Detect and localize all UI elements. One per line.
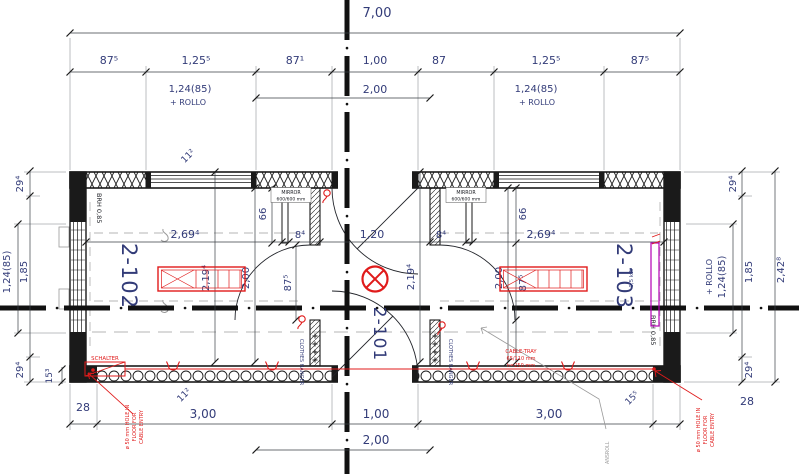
brh-note-left: BRH 0,85 <box>95 193 103 223</box>
dim-left-wall-top: 29⁴ <box>15 176 26 193</box>
dim-right-room: 1,85 <box>744 261 755 283</box>
dim-room-width-left: 2,69⁴ <box>171 228 200 241</box>
dim-bottom-28-right: 28 <box>740 395 754 408</box>
rollo-leader-text: ANSROLL <box>605 441 611 464</box>
floor-plan-drawing: 7,00 87⁵ 1,25⁵ 87¹ 1,00 87 1,25⁵ 87⁵ 2,0… <box>0 0 799 474</box>
cable-tray-label: CABLE-TRAY 65/110 mm h=250 mm <box>505 349 537 369</box>
clothes-hanger-note-right: CLOTHES HANGER <box>447 339 453 386</box>
cable-entry-text-1: ø 50 mm HOLE IN <box>125 405 131 450</box>
dim-thin-wall-left: 8⁴ <box>295 230 305 241</box>
dim-door-width-left: 87⁵ <box>283 275 294 292</box>
dim-total-width: 7,00 <box>363 6 392 21</box>
mirror-text-1: MIRROR <box>281 190 301 196</box>
dim-top-seg5: 87 <box>432 54 446 67</box>
dim-left-room: 1,85 <box>19 261 30 283</box>
mirror-label-left: MIRROR 600/600 mm <box>271 188 311 203</box>
dim-top-seg6: 1,25⁵ <box>532 54 561 67</box>
dim-top-seg4: 1,00 <box>363 54 388 67</box>
dim-right-wall-bottom: 29⁴ <box>744 362 755 379</box>
dim-mirror-wall-right: 66 <box>518 208 529 221</box>
cable-tray-text-2: 65/110 mm <box>507 356 536 362</box>
cable-entry-text-3: CABLE ENTRY <box>710 412 716 447</box>
brh-note-right: BRH 0,85 <box>649 315 657 345</box>
dim-window-note-right: 1,24(85) <box>515 84 558 95</box>
dim-mirror-wall-left: 66 <box>258 208 269 221</box>
room-label-left: 2-102 <box>117 243 141 309</box>
dim-room-width-right: 2,69⁴ <box>527 228 556 241</box>
cable-entry-point <box>652 367 656 371</box>
dim-top-seg7: 87⁵ <box>631 54 649 67</box>
dim-bottom-100: 1,00 <box>363 407 390 421</box>
dim-left-window: 1,24(85) <box>2 251 13 294</box>
dim-bottom-300-left: 3,00 <box>190 407 217 421</box>
wall-right-window <box>664 172 680 382</box>
dim-left-wall-bottom: 29⁴ <box>15 362 26 379</box>
dim-rollo-note-right: + ROLLO <box>519 98 555 107</box>
dim-corridor-depth: 2,19⁴ <box>406 264 417 290</box>
mirror-text-2: 600/600 mm <box>277 197 306 203</box>
cable-entry-text-2: FLOOR FOR <box>132 412 138 441</box>
dim-bottom-300-right: 3,00 <box>536 407 563 421</box>
mirror-text-1: MIRROR <box>456 190 476 196</box>
dim-rollo-note-left: + ROLLO <box>170 98 206 107</box>
dim-right-rollo: + ROLLO <box>705 259 714 295</box>
cable-entry-text-2: FLOOR FOR <box>703 415 709 444</box>
dim-right-window: 1,24(85) <box>717 256 728 299</box>
dim-top-seg2: 1,25⁵ <box>182 54 211 67</box>
clothes-hanger-note-left: CLOTHES HANGER <box>298 339 304 386</box>
dim-top-seg1: 87⁵ <box>100 54 118 67</box>
mirror-text-2: 600/600 mm <box>452 197 481 203</box>
switch-label: SCHALTER <box>91 356 119 362</box>
room-label-corridor: 2-101 <box>369 307 389 361</box>
mirror-label-right: MIRROR 600/600 mm <box>446 188 486 203</box>
dim-right-total: 2,42⁸ <box>776 257 787 283</box>
cable-tray-text-3: h=250 mm <box>507 363 535 369</box>
dim-top-seg3: 87¹ <box>286 54 304 67</box>
dim-left-inset: 15³ <box>45 368 55 383</box>
wall-left-window <box>70 172 86 382</box>
cable-entry-point <box>91 368 95 372</box>
dim-bottom-center: 2,00 <box>363 433 390 447</box>
heater-power-note: 0,5 kW <box>629 268 635 288</box>
cable-entry-text-3: CABLE ENTRY <box>139 409 145 444</box>
cable-entry-text-1: ø 50 mm HOLE IN <box>696 408 702 453</box>
dim-corridor-width: 1,20 <box>360 228 385 241</box>
dim-bottom-28-left: 28 <box>76 401 90 414</box>
dim-room-depth-b-left: 2,00 <box>241 267 252 289</box>
dim-right-wall-top: 29⁴ <box>728 176 739 193</box>
cad-canvas: 7,00 87⁵ 1,25⁵ 87¹ 1,00 87 1,25⁵ 87⁵ 2,0… <box>0 0 799 474</box>
dim-thin-wall-right: 8⁴ <box>436 230 446 241</box>
dim-top-center: 2,00 <box>363 83 388 96</box>
cable-tray-text-1: CABLE-TRAY <box>505 349 537 355</box>
dim-window-note-left: 1,24(85) <box>169 84 212 95</box>
dim-room-depth-a-left: 2,19⁴ <box>201 265 212 291</box>
